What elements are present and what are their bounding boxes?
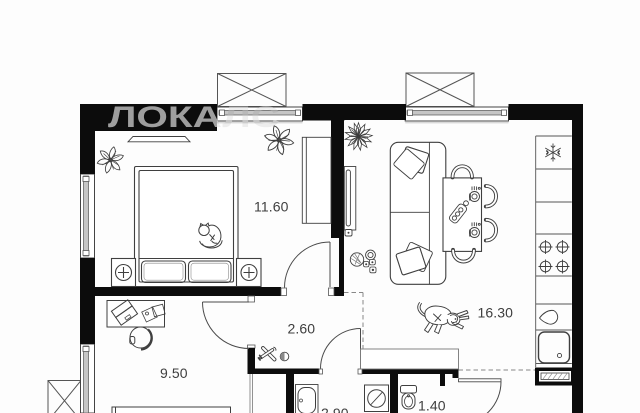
- svg-text:2.60: 2.60: [288, 321, 316, 337]
- svg-text:9.50: 9.50: [160, 365, 188, 381]
- svg-text:16.30: 16.30: [478, 305, 514, 321]
- svg-text:ЛОКАЛС: ЛОКАЛС: [108, 101, 280, 134]
- svg-text:2.90: 2.90: [321, 405, 349, 413]
- svg-text:1.40: 1.40: [418, 398, 446, 413]
- svg-text:11.60: 11.60: [254, 199, 289, 215]
